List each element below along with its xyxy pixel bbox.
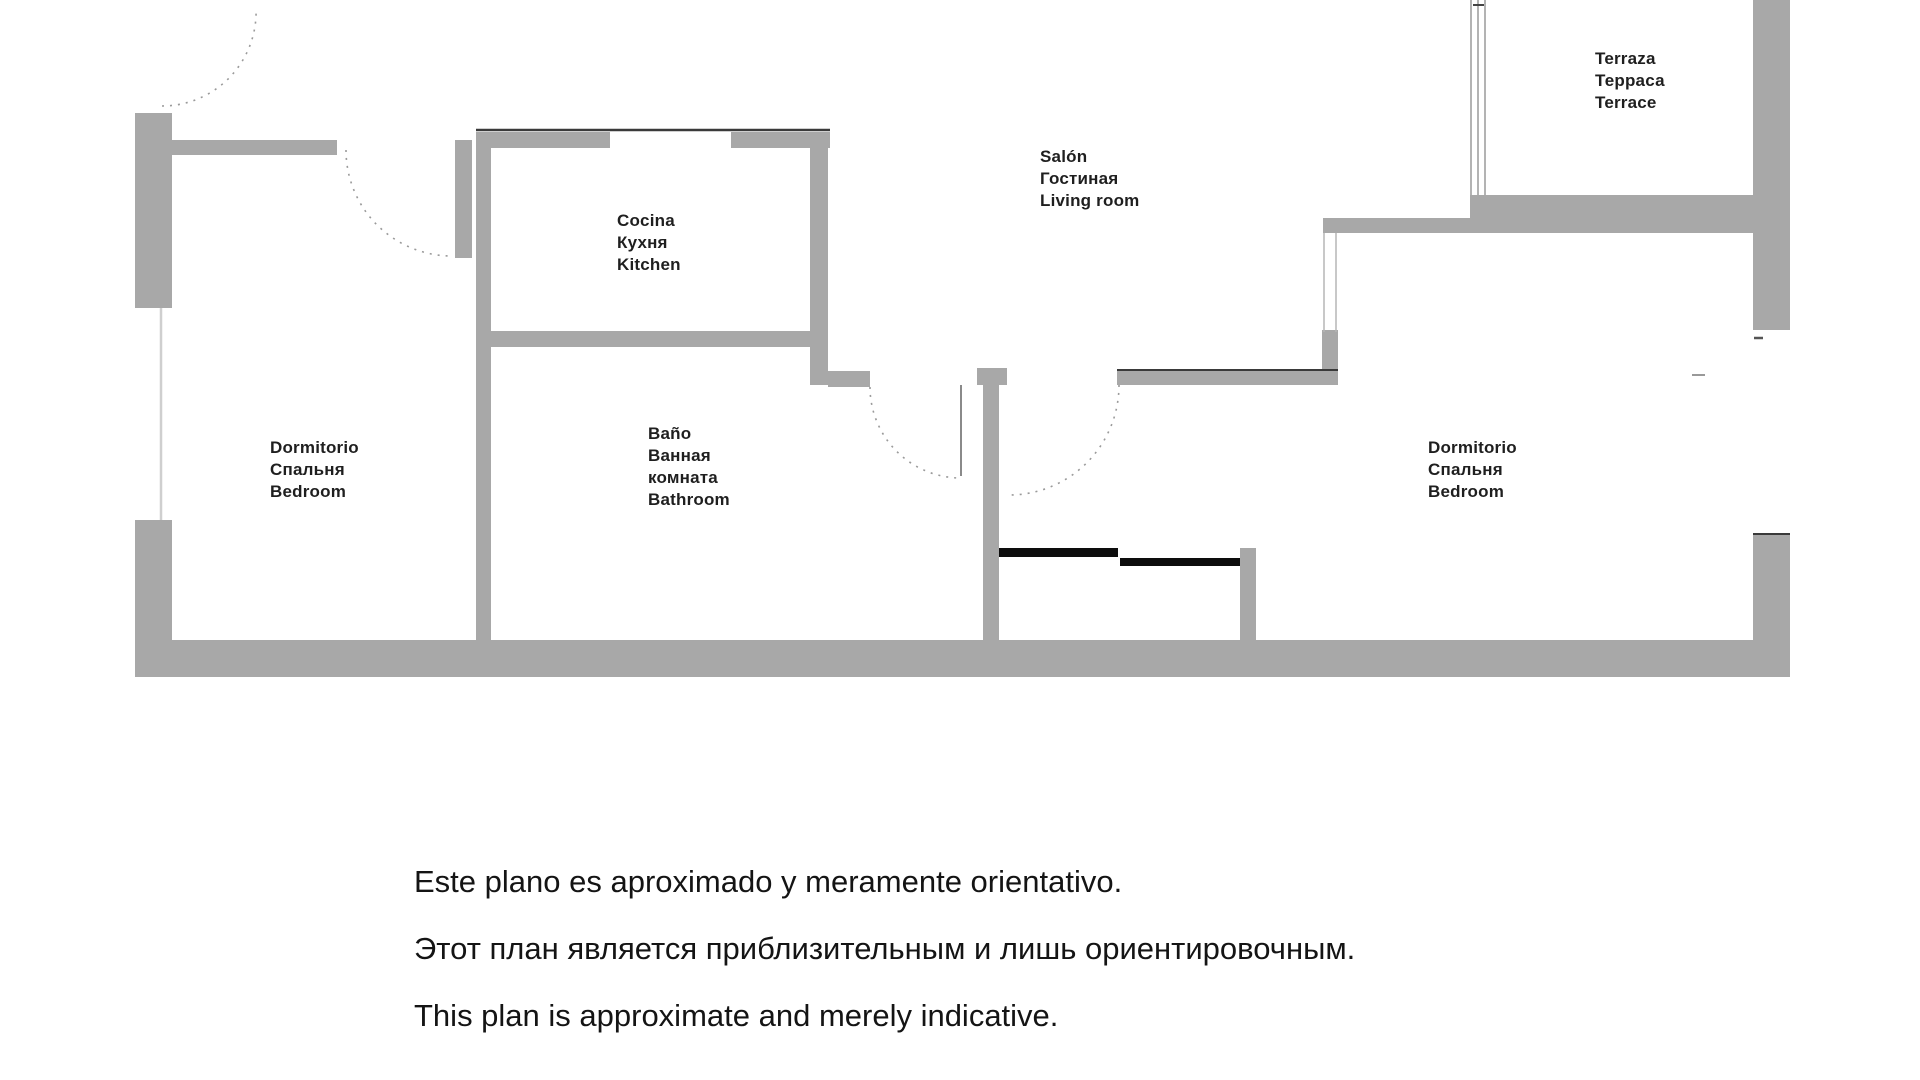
wall-hall-stub bbox=[828, 371, 870, 387]
closet-bar-left bbox=[999, 548, 1118, 557]
room-label-line: Cocina bbox=[617, 210, 681, 232]
room-label-line: Kitchen bbox=[617, 254, 681, 276]
room-label-terrace: Terraza Терраса Terrace bbox=[1595, 48, 1665, 114]
room-label-line: Dormitorio bbox=[1428, 437, 1517, 459]
room-label-line: комната bbox=[648, 467, 730, 489]
wall-bedroom1-top bbox=[172, 140, 337, 155]
room-label-line: Спальня bbox=[1428, 459, 1517, 481]
room-label-kitchen: Cocina Кухня Kitchen bbox=[617, 210, 681, 276]
disclaimer-line-es: Este plano es aproximado y meramente ori… bbox=[414, 848, 1355, 915]
room-label-line: Bedroom bbox=[270, 481, 359, 503]
wall-kitchen-top-left bbox=[476, 132, 610, 148]
wall-bottom bbox=[135, 640, 1790, 677]
wall-left-lower bbox=[135, 520, 172, 640]
wall-kitchen-bottom bbox=[491, 331, 810, 347]
wall-right-upper bbox=[1753, 0, 1790, 330]
room-label-line: Терраса bbox=[1595, 70, 1665, 92]
floor-plan: Dormitorio Спальня Bedroom Cocina Кухня … bbox=[0, 0, 1920, 1080]
wall-kitchen-right bbox=[810, 132, 828, 385]
room-label-bedroom-right: Dormitorio Спальня Bedroom bbox=[1428, 437, 1517, 503]
wall-bedroom2-left bbox=[983, 385, 999, 640]
room-label-line: Dormitorio bbox=[270, 437, 359, 459]
room-label-line: Спальня bbox=[270, 459, 359, 481]
wall-salon-bedroom2 bbox=[1117, 370, 1338, 385]
wall-terrace-bottom bbox=[1470, 195, 1753, 233]
room-label-line: Bedroom bbox=[1428, 481, 1517, 503]
room-label-line: Terraza bbox=[1595, 48, 1665, 70]
room-label-line: Salón bbox=[1040, 146, 1139, 168]
wall-interior-bedroom1 bbox=[476, 132, 491, 640]
bedroom1-door-arc bbox=[346, 150, 452, 256]
room-label-bathroom: Baño Ванная комната Bathroom bbox=[648, 423, 730, 511]
closet-bar-right bbox=[1120, 558, 1240, 566]
disclaimer-line-ru: Этот план является приблизительным и лиш… bbox=[414, 915, 1355, 982]
disclaimer-line-en: This plan is approximate and merely indi… bbox=[414, 982, 1355, 1049]
room-label-line: Baño bbox=[648, 423, 730, 445]
room-label-line: Terrace bbox=[1595, 92, 1665, 114]
entry-door-arc bbox=[162, 8, 256, 106]
wall-pillar bbox=[455, 140, 472, 258]
wall-terrace-left bbox=[1323, 218, 1473, 233]
wall-salon-right-lower bbox=[1322, 330, 1338, 385]
wall-right-lower bbox=[1753, 535, 1790, 640]
wall-closet-stub bbox=[1240, 548, 1256, 640]
room-label-line: Living room bbox=[1040, 190, 1139, 212]
room-label-bedroom-left: Dormitorio Спальня Bedroom bbox=[270, 437, 359, 503]
room-label-living-room: Salón Гостиная Living room bbox=[1040, 146, 1139, 212]
room-label-line: Гостиная bbox=[1040, 168, 1139, 190]
disclaimer-text: Este plano es aproximado y meramente ori… bbox=[414, 848, 1355, 1049]
wall-left-upper bbox=[135, 113, 172, 308]
room-label-line: Ванная bbox=[648, 445, 730, 467]
room-label-line: Bathroom bbox=[648, 489, 730, 511]
room-label-line: Кухня bbox=[617, 232, 681, 254]
bedroom2-door-arc bbox=[1009, 385, 1119, 495]
bathroom-door-arc bbox=[870, 387, 961, 478]
wall-hall-post bbox=[977, 368, 1007, 385]
